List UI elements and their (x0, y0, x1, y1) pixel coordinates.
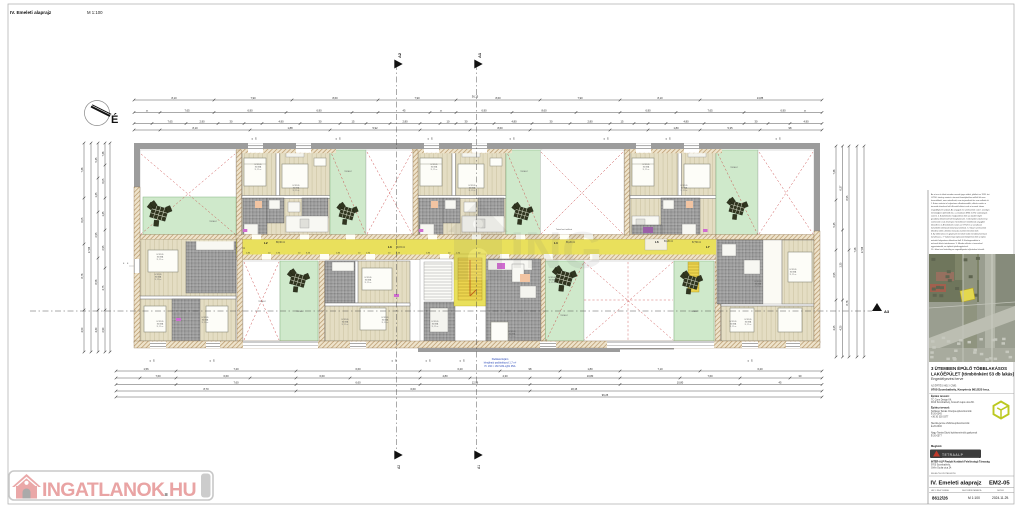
svg-text:+36 30 330 0377: +36 30 330 0377 (931, 417, 949, 419)
svg-text:2,90: 2,90 (102, 327, 105, 332)
svg-text:7,90: 7,90 (250, 96, 256, 100)
svg-text:2024.11.29.: 2024.11.29. (992, 496, 1009, 500)
svg-text:4,80: 4,80 (511, 119, 517, 123)
svg-text:IV. Emeleti alaprajz: IV. Emeleti alaprajz (10, 10, 52, 15)
svg-text:1,80: 1,80 (673, 126, 679, 130)
svg-text:É: É (111, 113, 118, 126)
svg-text:90: 90 (460, 360, 462, 362)
svg-text:6,05: 6,05 (81, 217, 84, 222)
svg-text:HELYI RAJZ SZÁMA: HELYI RAJZ SZÁMA (931, 489, 949, 492)
svg-text:90: 90 (150, 360, 152, 362)
svg-text:17,66: 17,66 (861, 246, 864, 253)
svg-text:lefedése előtt a felelős műsza: lefedése előtt a felelős műszaki vezetőt… (931, 230, 979, 233)
svg-text:1,35: 1,35 (95, 192, 98, 197)
svg-text:6,60: 6,60 (410, 387, 416, 391)
svg-text:210: 210 (607, 137, 609, 140)
svg-text:7,90: 7,90 (414, 96, 420, 100)
svg-text:90: 90 (428, 138, 430, 140)
svg-text:90: 90 (604, 138, 606, 140)
svg-text:geodéziai kitűzéssel kell megh: geodéziai kitűzéssel kell meghatározni. … (931, 217, 988, 220)
svg-text:11,22 m²: 11,22 m² (681, 189, 688, 192)
svg-text:tartalmazza. 7. Valamennyi nyí: tartalmazza. 7. Valamennyi nyílászáró be… (931, 236, 986, 239)
svg-text:készülhet. 4. A kivitelezés so: készülhet. 4. A kivitelezés során az OTS… (931, 224, 983, 227)
svg-text:7,60: 7,60 (707, 374, 713, 378)
svg-text:L6: L6 (655, 240, 659, 244)
svg-text:tűzvédelmi előírások betartása: tűzvédelmi előírások betartása kötelező.… (931, 227, 986, 230)
svg-text:6,60: 6,60 (319, 374, 325, 378)
svg-text:TETRAALP: TETRAALP (942, 453, 964, 457)
svg-text:6,60: 6,60 (355, 367, 361, 371)
svg-text:LXXVI. törvény szerint a terve: LXXVI. törvény szerint a tervező hozzájá… (931, 196, 986, 199)
svg-text:Szőkéné Tamás Orsolya építészm: Szőkéné Tamás Orsolya építészmérnök (931, 410, 972, 413)
svg-text:engedélyével szabad. Az anyago: engedélyével szabad. Az anyagok és szerk… (931, 208, 989, 211)
svg-text:méretét helyszínen ellenőrizni: méretét helyszínen ellenőrizni kell. 8. … (931, 239, 981, 242)
svg-text:67,56 m²: 67,56 m² (692, 241, 701, 244)
svg-text:11,22 m²: 11,22 m² (157, 258, 164, 261)
svg-text:8612/26: 8612/26 (932, 496, 948, 501)
svg-text:DÁTUM: DÁTUM (997, 489, 1004, 492)
svg-text:2,95: 2,95 (833, 272, 836, 277)
svg-text:É-20-0346: É-20-0346 (931, 425, 942, 428)
svg-text:7,90: 7,90 (577, 96, 583, 100)
svg-text:5,35: 5,35 (727, 126, 733, 130)
svg-text:M 1:100: M 1:100 (87, 10, 103, 15)
svg-text:7,36: 7,36 (102, 151, 105, 156)
svg-text:É-20-0345: É-20-0345 (931, 413, 942, 416)
svg-text:Engedélyezési terve: Engedélyezési terve (931, 377, 963, 381)
svg-text:210: 210 (779, 137, 781, 140)
svg-text:1,80: 1,80 (587, 367, 593, 371)
svg-text:HU: HU (169, 479, 196, 501)
svg-text:2,80: 2,80 (402, 119, 408, 123)
svg-text:Megbízó:: Megbízó: (931, 444, 942, 448)
svg-text:6,05: 6,05 (102, 178, 105, 183)
svg-text:Építész tervező:: Építész tervező: (931, 407, 950, 410)
svg-text:6,90: 6,90 (247, 108, 253, 112)
svg-text:12,96: 12,96 (472, 380, 479, 384)
svg-text:90: 90 (666, 138, 668, 140)
svg-text:210: 210 (751, 359, 753, 362)
svg-text:11,22 m²: 11,22 m² (730, 325, 737, 328)
svg-text:INGATLANOK: INGATLANOK (42, 479, 165, 501)
svg-text:6,90: 6,90 (780, 108, 786, 112)
svg-text:Nagy Tamás Dávid építészmérnök: Nagy Tamás Dávid építészmérnök gyakornok (931, 432, 978, 435)
svg-text:2,95: 2,95 (95, 232, 98, 237)
svg-text:4,80: 4,80 (442, 374, 448, 378)
svg-text:68,30 m²: 68,30 m² (276, 241, 285, 244)
svg-text:210: 210 (213, 359, 215, 362)
svg-text:EM2-05: EM2-05 (989, 481, 1010, 487)
svg-text:90: 90 (426, 360, 428, 362)
svg-text:2,95: 2,95 (102, 245, 105, 250)
svg-text:6,90: 6,90 (481, 108, 487, 112)
svg-text:Az e terv és ábrái minden szer: Az e terv és ábrái minden szerzői joga v… (931, 193, 990, 196)
svg-text:TERASZ: TERASZ (296, 310, 304, 313)
svg-text:4,80: 4,80 (683, 119, 689, 123)
svg-text:11,22 m²: 11,22 m² (755, 285, 762, 288)
svg-text:4,90: 4,90 (803, 119, 809, 123)
svg-text:90: 90 (510, 138, 512, 140)
svg-text:A2: A2 (397, 52, 402, 58)
svg-text:1,56: 1,56 (143, 367, 149, 371)
svg-text:Építési tervező:: Építési tervező: (931, 395, 950, 398)
svg-text:6,20: 6,20 (757, 367, 763, 371)
svg-text:90: 90 (210, 360, 212, 362)
svg-text:INTER-ALP Pindult Korlátolt Fe: INTER-ALP Pindult Korlátolt Felelősségű … (931, 461, 990, 464)
svg-text:M 1:100: M 1:100 (968, 496, 980, 500)
svg-text:90: 90 (392, 360, 394, 362)
svg-text:8,10: 8,10 (171, 96, 177, 100)
svg-text:10,80: 10,80 (677, 380, 684, 384)
svg-text:8,10: 8,10 (192, 126, 198, 130)
svg-text:8,60: 8,60 (495, 96, 501, 100)
svg-text:7,60: 7,60 (155, 374, 161, 378)
svg-text:6,90: 6,90 (316, 108, 322, 112)
svg-text:11,22 m²: 11,22 m² (365, 281, 372, 284)
svg-text:Slezák-gercse Zsibrita építész: Slezák-gercse Zsibrita építészmérnök (931, 422, 970, 425)
svg-text:A1: A1 (477, 465, 481, 469)
svg-text:11,22 m²: 11,22 m² (790, 273, 797, 276)
svg-text:szerkezete csak érvényes minős: szerkezete csak érvényes minősítéssel re… (931, 220, 985, 223)
svg-text:4,50: 4,50 (81, 327, 84, 332)
svg-text:használható, nem másolható, ne: használható, nem másolható, nem terjeszt… (931, 199, 989, 202)
svg-text:11,22 m²: 11,22 m² (255, 168, 262, 171)
svg-text:7,10: 7,10 (657, 367, 663, 371)
svg-text:szerint. 2. A kivitelezés megk: szerint. 2. A kivitelezés megkezdése elő… (931, 214, 982, 217)
svg-text:8,76: 8,76 (81, 273, 84, 278)
svg-text:LAKÓÉPÜLET (tömbönként 53 db l: LAKÓÉPÜLET (tömbönként 53 db lakás) (931, 372, 1015, 377)
svg-text:4,90: 4,90 (278, 119, 284, 123)
svg-text:L7: L7 (706, 245, 710, 249)
svg-text:11,22 m²: 11,22 m² (745, 323, 752, 326)
svg-text:4,30: 4,30 (95, 327, 98, 332)
svg-text:8,95: 8,95 (846, 195, 849, 200)
svg-text:8,60: 8,60 (497, 126, 503, 130)
svg-text:4,20: 4,20 (840, 325, 843, 330)
svg-text:ING: ING (510, 222, 602, 280)
svg-text:FELELŐS KIVITELEZŐK:: FELELŐS KIVITELEZŐK: (931, 472, 957, 475)
svg-text:96,25: 96,25 (602, 393, 609, 397)
svg-text:3 ÜTEMBEN ÉPÜLŐ TÖBBLAKÁSOS: 3 ÜTEMBEN ÉPÜLŐ TÖBBLAKÁSOS (931, 366, 1007, 371)
svg-text:minőségben építhetők be, a von: minőségben építhetők be, a vonatkozó MSZ… (931, 211, 987, 214)
svg-text:11,22 m²: 11,22 m² (382, 321, 389, 324)
svg-text:8,10: 8,10 (657, 96, 663, 100)
svg-text:210: 210 (339, 137, 341, 140)
svg-text:9010 Szombathely, Kossuth Lajo: 9010 Szombathely, Kossuth Lajos utca 80. (931, 401, 975, 404)
svg-text:10. Jelen terv kizárólag az en: 10. Jelen terv kizárólag az engedélyezés… (931, 248, 985, 251)
svg-text:Pl. 160 × 160 SzM-Lg51 RVA: Pl. 160 × 160 SzM-Lg51 RVA (484, 365, 515, 368)
svg-text:11,22 m²: 11,22 m² (293, 189, 300, 192)
svg-text:4,25: 4,25 (833, 325, 836, 330)
svg-text:TERASZ: TERASZ (344, 170, 352, 173)
svg-text:1,35: 1,35 (840, 262, 843, 267)
svg-text:TERASZ: TERASZ (258, 300, 266, 303)
svg-text:13,85: 13,85 (757, 96, 764, 100)
svg-text:6,60: 6,60 (223, 374, 229, 378)
svg-text:7,36: 7,36 (833, 169, 836, 174)
svg-text:11,22 m²: 11,22 m² (202, 321, 209, 324)
svg-text:TERASZ: TERASZ (690, 310, 698, 313)
svg-text:Géfin Gyula utca 24.: Géfin Gyula utca 24. (931, 467, 952, 470)
svg-text:36,15: 36,15 (472, 95, 479, 99)
svg-text:TC Cons Design Kft.: TC Cons Design Kft. (931, 398, 952, 401)
svg-text:8,70: 8,70 (203, 387, 209, 391)
svg-text:8,60: 8,60 (541, 108, 547, 112)
svg-text:4,30: 4,30 (502, 374, 508, 378)
svg-text:4,75: 4,75 (102, 285, 105, 290)
svg-text:210: 210 (153, 359, 155, 362)
svg-text:11,22 m²: 11,22 m² (469, 189, 476, 192)
svg-text:A2: A2 (397, 465, 401, 469)
svg-text:210: 210 (429, 359, 431, 362)
svg-text:18,15: 18,15 (571, 387, 578, 391)
svg-text:É-20-0577: É-20-0577 (931, 434, 942, 437)
svg-text:90: 90 (748, 360, 750, 362)
svg-text:8,76: 8,76 (846, 300, 849, 305)
svg-text:90: 90 (776, 138, 778, 140)
svg-text:9700 Szombathely, Kenyérvíz 86: 9700 Szombathely, Kenyérvíz 861/225 hrsz… (931, 388, 990, 392)
svg-text:1,88: 1,88 (287, 126, 293, 130)
svg-text:műszaki leírás tartalmazza. 9.: műszaki leírás tartalmazza. 9. Minden el… (931, 242, 983, 245)
svg-text:RAJZ MÉRETARÁNYA: RAJZ MÉRETARÁNYA (962, 489, 982, 492)
svg-text:68,15 m²: 68,15 m² (396, 246, 405, 249)
svg-text:8,60: 8,60 (332, 96, 338, 100)
svg-text:11,22 m²: 11,22 m² (155, 278, 162, 281)
svg-text:TERASZ: TERASZ (730, 166, 738, 169)
svg-text:11,22 m²: 11,22 m² (549, 281, 556, 284)
svg-text:5,92: 5,92 (372, 126, 378, 130)
svg-text:83,20 m²: 83,20 m² (664, 240, 673, 243)
svg-text:11,22 m²: 11,22 m² (342, 323, 349, 326)
svg-text:6,37: 6,37 (840, 185, 843, 190)
svg-text:egyeztetendő, az építtető jóvá: egyeztetendő, az építtető jóváhagyásával… (931, 245, 969, 248)
svg-text:11,22 m²: 11,22 m² (431, 168, 438, 171)
svg-text:210: 210 (255, 137, 257, 140)
svg-text:7,36: 7,36 (81, 167, 84, 172)
svg-text:210: 210 (463, 359, 465, 362)
svg-text:2,90: 2,90 (199, 119, 205, 123)
svg-text:7,26: 7,26 (854, 247, 857, 252)
svg-text:5,45: 5,45 (833, 222, 836, 227)
svg-text:IV. Emeleti alaprajz: IV. Emeleti alaprajz (931, 481, 982, 487)
svg-text:90: 90 (252, 138, 254, 140)
svg-text:8,56: 8,56 (95, 279, 98, 284)
svg-text:A1: A1 (477, 52, 482, 58)
svg-text:6. Az elektromos és gépészeti: 6. Az elektromos és gépészeti terveket k… (931, 233, 988, 236)
svg-text:TERASZ: TERASZ (560, 314, 568, 317)
svg-text:7,65: 7,65 (184, 108, 190, 112)
svg-text:7,65: 7,65 (707, 108, 713, 112)
svg-text:11,22 m²: 11,22 m² (509, 335, 516, 338)
svg-text:210: 210 (669, 137, 671, 140)
svg-text:7,65: 7,65 (167, 119, 173, 123)
svg-text:11,22 m²: 11,22 m² (643, 168, 650, 171)
svg-text:A3: A3 (884, 309, 890, 314)
svg-text:11,22 m²: 11,22 m² (157, 325, 164, 328)
svg-text:TERASZ: TERASZ (209, 220, 217, 223)
svg-text:10,80: 10,80 (587, 374, 594, 378)
svg-text:210: 210 (431, 137, 433, 140)
svg-text:1,35: 1,35 (102, 211, 105, 216)
svg-text:210: 210 (513, 137, 515, 140)
svg-text:11,22 m²: 11,22 m² (432, 325, 439, 328)
svg-text:2,80: 2,80 (587, 119, 593, 123)
svg-text:6,20: 6,20 (457, 367, 463, 371)
svg-text:6,60: 6,60 (355, 380, 361, 384)
svg-text:17,66: 17,66 (88, 246, 91, 253)
svg-text:5,45: 5,45 (95, 157, 98, 162)
svg-text:7,20: 7,20 (233, 367, 239, 371)
svg-text:TERASZ: TERASZ (520, 170, 528, 173)
svg-text:1. A terv méretei a helyszínen: 1. A terv méretei a helyszínen ellenőriz… (931, 202, 987, 205)
svg-text:6,90: 6,90 (645, 108, 651, 112)
svg-text:7,60: 7,60 (233, 380, 239, 384)
svg-text:L2: L2 (264, 241, 268, 245)
svg-text:90: 90 (336, 138, 338, 140)
svg-text:tervezőt értesíteni kell. A te: tervezőt értesíteni kell. A tervtől elté… (931, 205, 984, 208)
svg-text:L3: L3 (388, 245, 392, 249)
svg-text:9700 Szombathely,: 9700 Szombathely, (931, 464, 951, 467)
